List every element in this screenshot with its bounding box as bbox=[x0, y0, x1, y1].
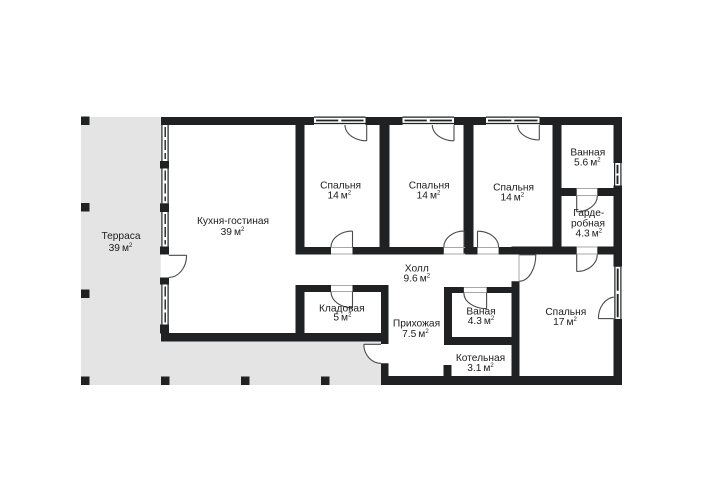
svg-text:Гарде-: Гарде- bbox=[573, 208, 604, 219]
svg-text:Терраса: Терраса bbox=[101, 231, 140, 242]
svg-text:4.3м2: 4.3м2 bbox=[576, 228, 603, 239]
svg-text:Прихожая: Прихожая bbox=[393, 319, 440, 330]
svg-text:7.5м2: 7.5м2 bbox=[402, 329, 429, 340]
svg-text:Кухня-гостиная: Кухня-гостиная bbox=[197, 216, 269, 227]
svg-text:5.6м2: 5.6м2 bbox=[574, 158, 601, 169]
svg-text:9.6м2: 9.6м2 bbox=[404, 273, 431, 284]
svg-text:4.3м2: 4.3м2 bbox=[468, 316, 495, 327]
svg-text:3.1м2: 3.1м2 bbox=[467, 363, 494, 374]
